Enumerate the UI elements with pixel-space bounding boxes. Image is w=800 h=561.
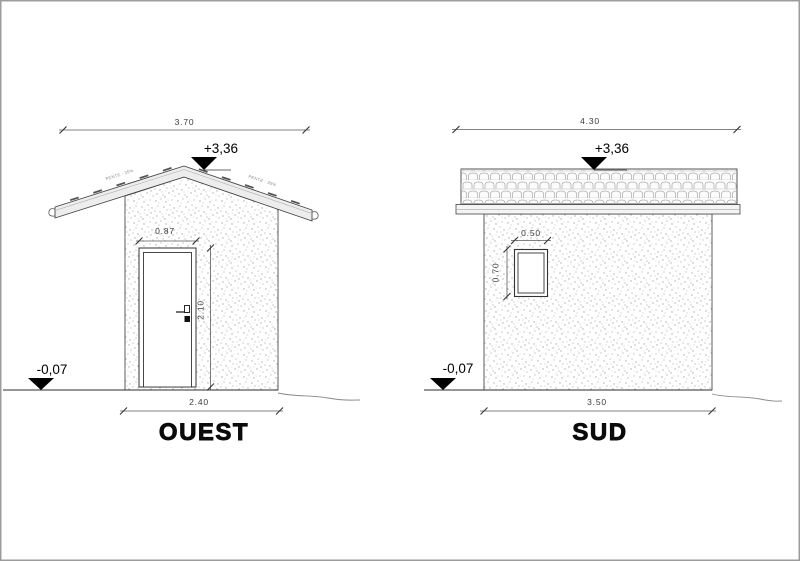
ouest-ridge-level-marker: +3,36	[191, 141, 238, 170]
ouest-ground-level-text: -0,07	[37, 362, 68, 377]
sud-terrain-line	[712, 394, 782, 401]
door-height-text: 2.10	[196, 300, 206, 320]
ouest-terrain-line	[278, 393, 360, 400]
sud-ground-level-text: -0,07	[443, 361, 474, 376]
sud-roof	[456, 169, 740, 214]
sud-ridge-level-marker: +3,36	[581, 141, 629, 170]
ouest-facade-width-text: 2.40	[189, 397, 209, 407]
ouest-slope-label-right: PENTE : 35%	[248, 174, 277, 188]
sud-facade-width-dimension: 3.50	[480, 397, 716, 415]
sud-elevation: 0.50 0.70 4.30 +3,36 -0,07	[424, 116, 782, 446]
window-sash	[518, 253, 544, 293]
ouest-gutter-hook-right	[312, 212, 318, 220]
ouest-overall-width-dimension: 3.70	[59, 117, 310, 134]
ouest-overall-width-text: 3.70	[175, 117, 195, 127]
door-width-text: 0.87	[155, 226, 175, 236]
ouest-slope-label-left: PENTE : 35%	[105, 168, 134, 182]
ouest-ridge-level-text: +3,36	[204, 141, 238, 156]
sud-facade-width-text: 3.50	[587, 397, 607, 407]
sud-overall-width-text: 4.30	[580, 116, 600, 126]
sud-overall-width-dimension: 4.30	[452, 116, 741, 133]
window-height-text: 0.70	[491, 263, 501, 283]
door-leaf	[144, 253, 192, 388]
sud-ridge-level-text: +3,36	[595, 141, 629, 156]
elevations-drawing: PENTE : 35% PENTE : 35% 0.87 2.10	[0, 0, 800, 561]
ouest-ground-level-marker: -0,07	[28, 362, 67, 390]
sud-title: SUD	[572, 419, 627, 446]
ouest-facade-width-dimension: 2.40	[120, 397, 283, 415]
sud-ground-level-marker: -0,07	[430, 361, 473, 390]
window-width-text: 0.50	[521, 228, 541, 238]
ouest-door	[139, 248, 196, 387]
level-triangle-icon	[430, 378, 456, 390]
drawing-sheet: PENTE : 35% PENTE : 35% 0.87 2.10	[0, 0, 800, 561]
level-triangle-icon	[28, 378, 54, 390]
level-triangle-icon	[191, 157, 217, 170]
ouest-gutter-hook-left	[49, 209, 55, 217]
ouest-title: OUEST	[159, 419, 249, 446]
sud-window	[515, 250, 548, 297]
ouest-elevation: PENTE : 35% PENTE : 35% 0.87 2.10	[3, 117, 360, 446]
sud-roof-tiles	[461, 169, 737, 204]
level-triangle-icon	[581, 157, 607, 170]
